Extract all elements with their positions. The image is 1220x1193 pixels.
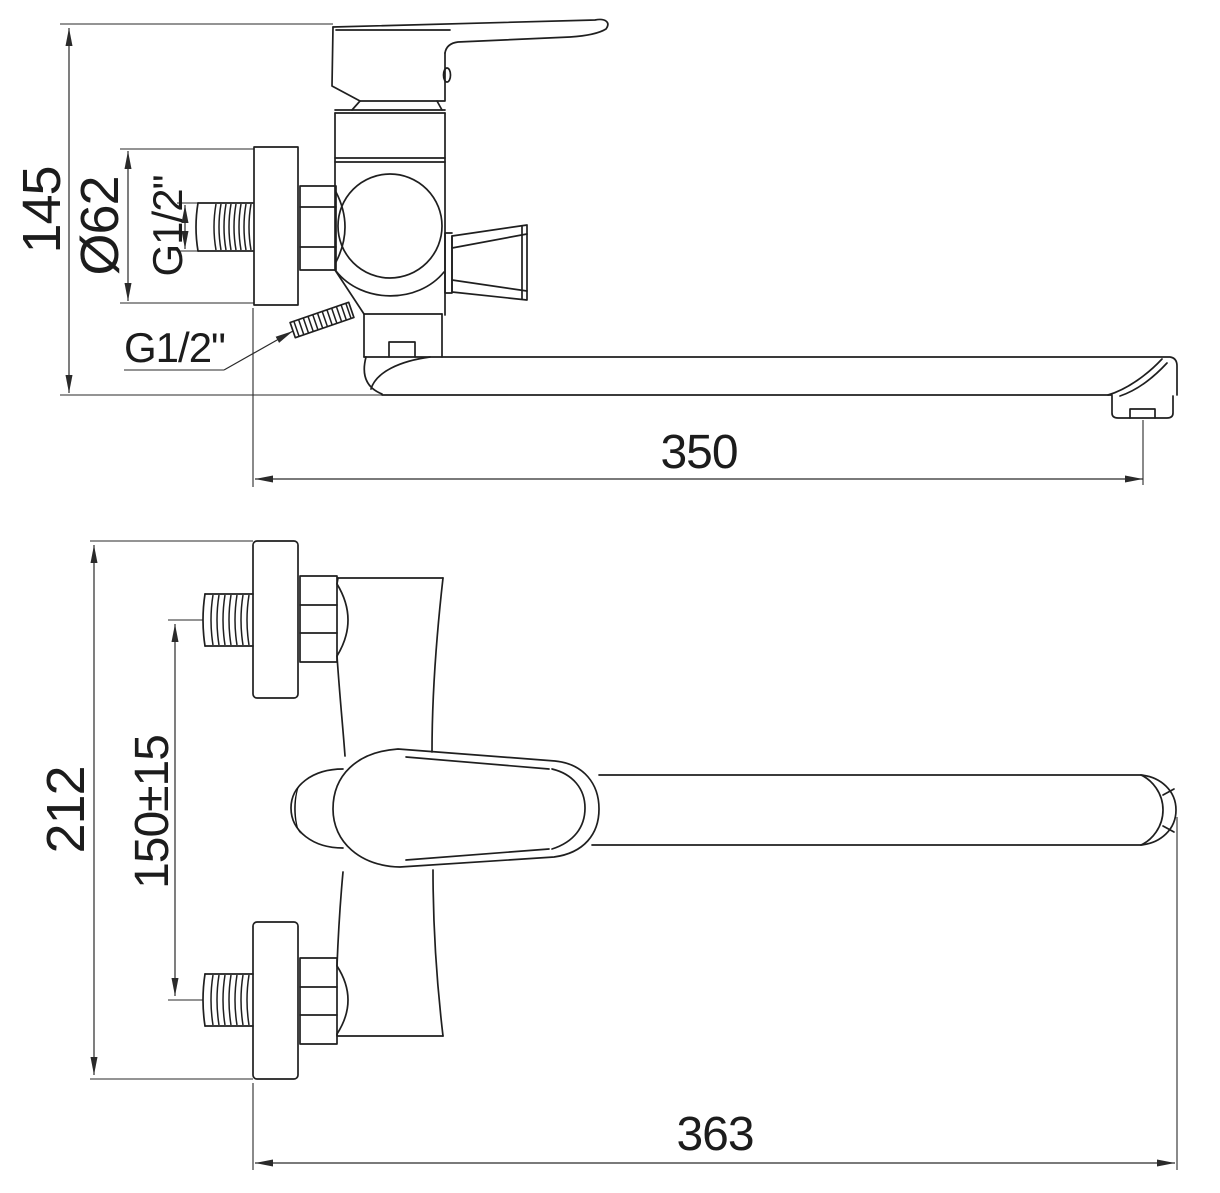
dim-212-label: 212 — [36, 766, 96, 853]
dim-thread-rotated-label: G1/2" — [144, 175, 191, 276]
dim-thread-leader-label: G1/2" — [124, 324, 225, 371]
dim-145-label: 145 — [12, 166, 72, 253]
faucet-technical-drawing: 145 Ø62 G1/2" G1/2" 350 — [0, 0, 1220, 1193]
dim-150-label: 150±15 — [126, 735, 179, 889]
dim-350-label: 350 — [660, 426, 737, 479]
dim-363-label: 363 — [676, 1108, 753, 1161]
dim-d62-label: Ø62 — [70, 176, 130, 275]
